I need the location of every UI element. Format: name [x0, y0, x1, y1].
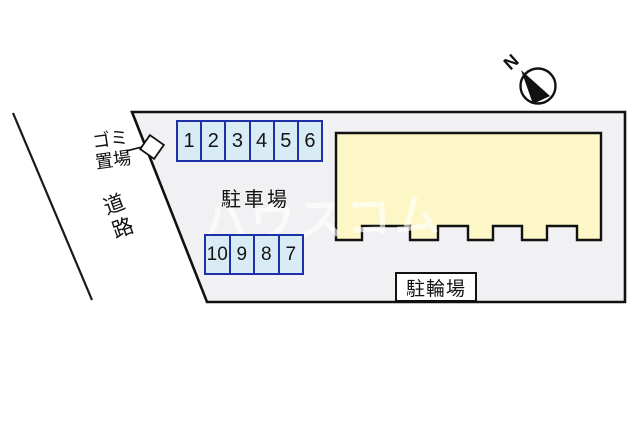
parking-stall-5: 5 — [275, 122, 299, 160]
parking-stall-10: 10 — [206, 236, 231, 273]
parking-stall-6: 6 — [299, 122, 321, 160]
stall-number: 4 — [256, 130, 267, 153]
parking-row-2: 10 9 8 7 — [204, 234, 304, 275]
stall-number: 2 — [208, 130, 219, 153]
stall-number: 9 — [236, 244, 247, 266]
stall-number: 6 — [304, 130, 315, 153]
stall-number: 5 — [280, 130, 291, 153]
stall-number: 1 — [184, 130, 195, 153]
parking-stall-4: 4 — [251, 122, 275, 160]
parking-stall-9: 9 — [231, 236, 256, 273]
stall-number: 7 — [285, 244, 296, 266]
stall-number: 3 — [232, 130, 243, 153]
bicycle-parking-label-box: 駐輪場 — [395, 272, 477, 302]
building-outline — [336, 133, 601, 240]
parking-stall-8: 8 — [255, 236, 280, 273]
stall-number: 10 — [207, 244, 228, 266]
parking-row-1: 1 2 3 4 5 6 — [176, 120, 323, 162]
parking-stall-3: 3 — [226, 122, 250, 160]
parking-lot-label: 駐車場 — [221, 183, 290, 212]
stall-number: 8 — [261, 244, 272, 266]
garbage-area-label: ゴミ 置場 — [91, 127, 132, 174]
site-plan-svg — [0, 0, 640, 426]
parking-stall-1: 1 — [178, 122, 202, 160]
parking-stall-7: 7 — [280, 236, 303, 273]
parking-stall-2: 2 — [202, 122, 226, 160]
bicycle-parking-label: 駐輪場 — [406, 274, 466, 301]
road-line — [13, 113, 92, 300]
site-plan: ハウスコム N ゴミ 置場 道路 駐車場 1 2 3 4 5 6 10 9 8 … — [0, 0, 640, 426]
